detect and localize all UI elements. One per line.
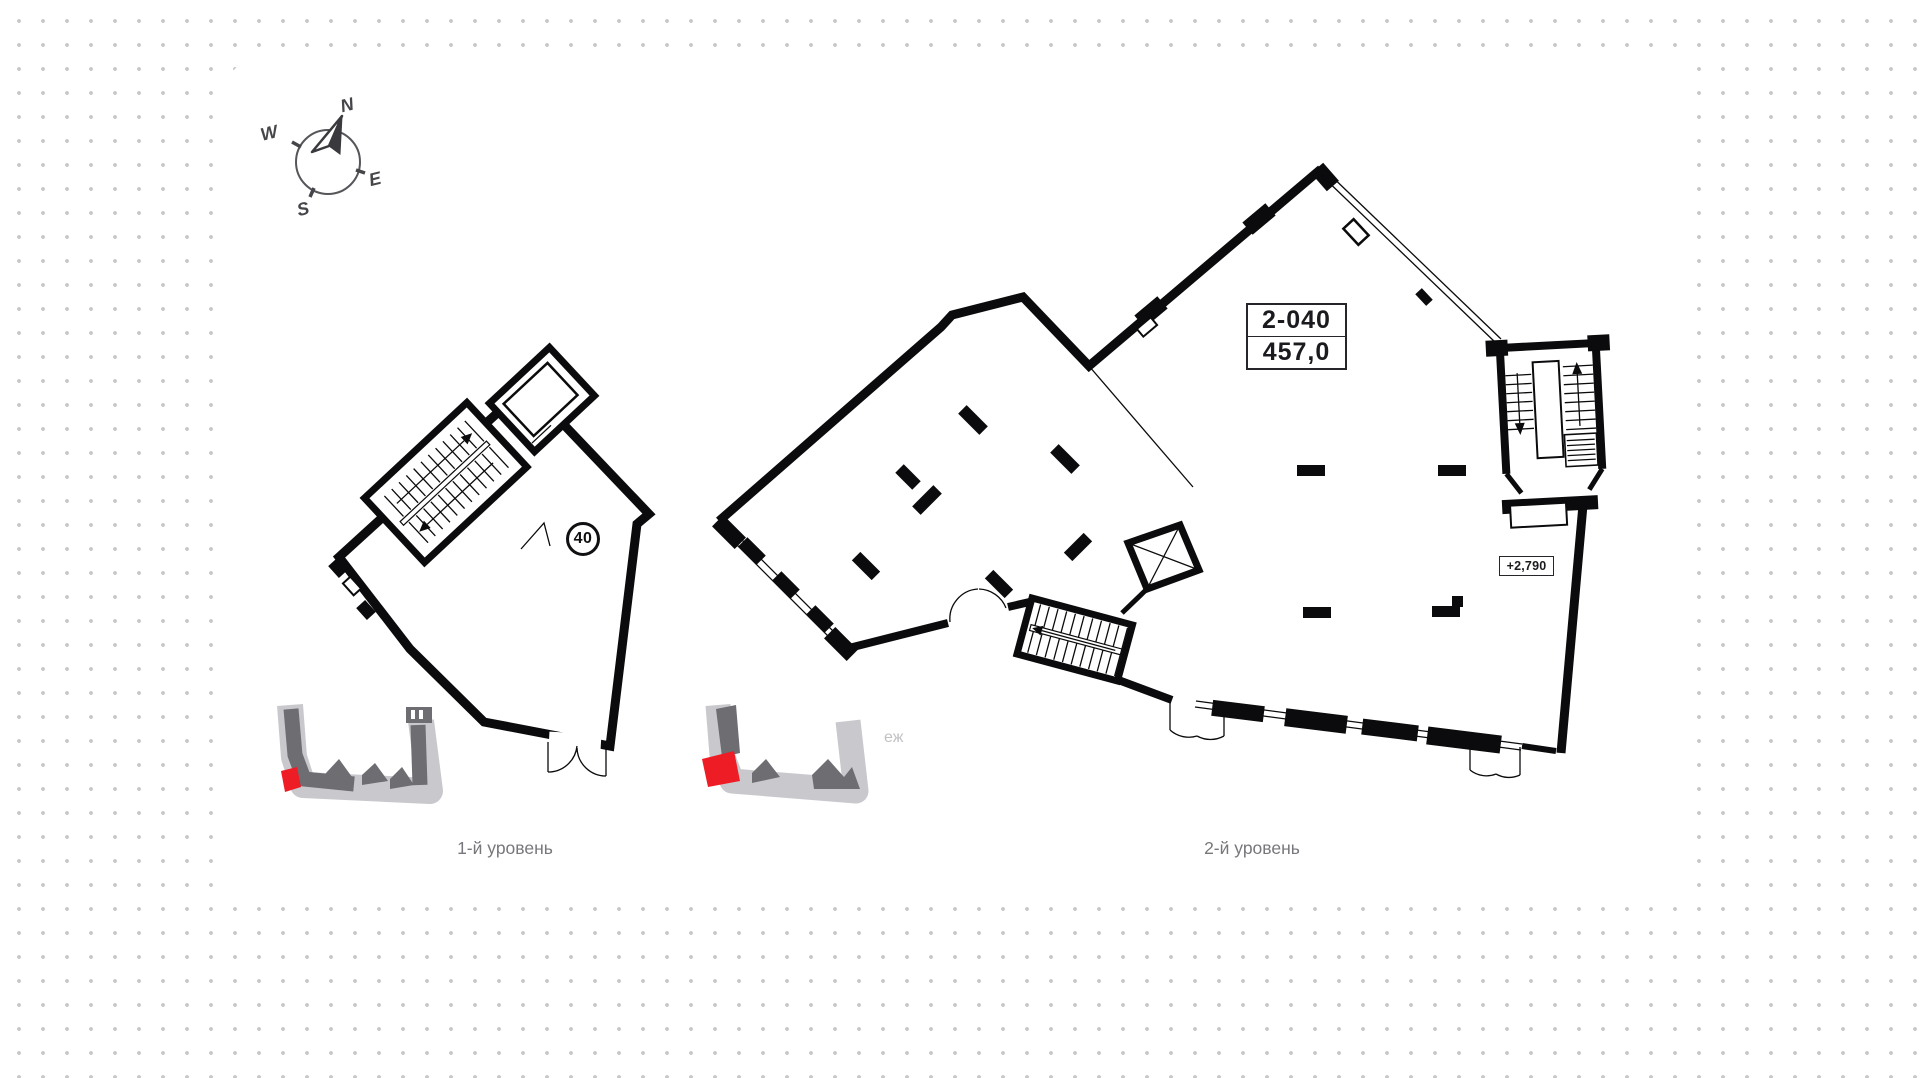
- elevation-mark: +2,790: [1499, 556, 1554, 576]
- level2-caption: 2-й уровень: [1142, 838, 1362, 859]
- unit-number-badge: 40: [566, 522, 600, 556]
- unit-area: 457,0: [1248, 336, 1345, 368]
- level1-caption: 1-й уровень: [395, 838, 615, 859]
- unit-info-box: 2-040 457,0: [1246, 303, 1347, 370]
- unit-code: 2-040: [1248, 305, 1345, 336]
- floorplan-page: { "compass": { "north": "N", "east": "E"…: [0, 0, 1920, 1078]
- plan-card: [232, 66, 1688, 906]
- unit-number: 40: [574, 530, 593, 548]
